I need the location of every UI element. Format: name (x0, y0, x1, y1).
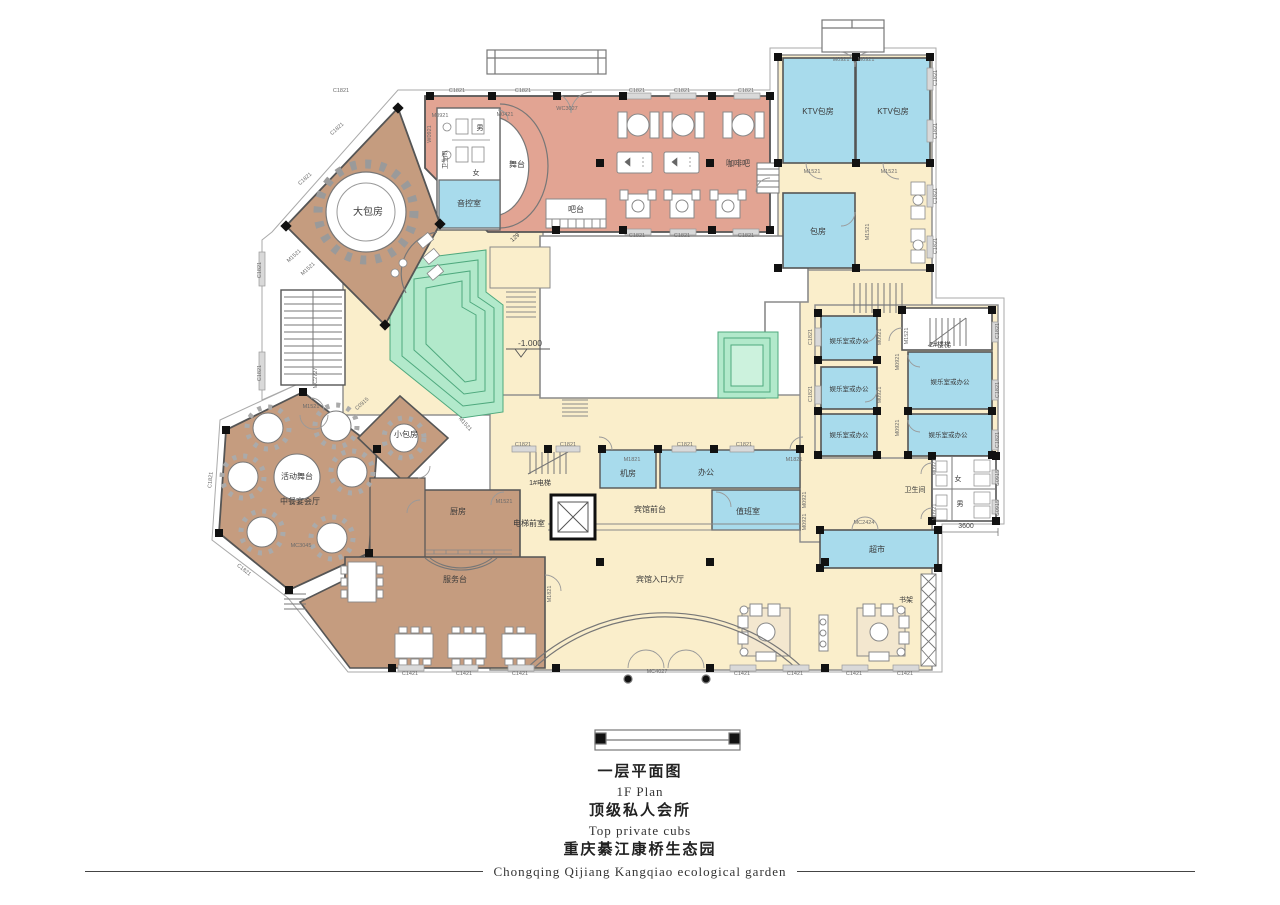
door-window-code: C1821 (674, 88, 690, 94)
office-room: 办公 (698, 467, 714, 477)
door-window-code: C1821 (257, 262, 263, 278)
door-window-code: C1821 (515, 442, 531, 448)
door-window-code: C1821 (629, 233, 645, 239)
door-window-code: C1421 (456, 671, 472, 677)
door-window-code: C1821 (933, 238, 939, 254)
door-window-code: M0421 (497, 112, 514, 118)
door-window-code: M1821 (624, 457, 641, 463)
door-window-code: M0921 (932, 504, 938, 521)
door-window-code: M1521 (865, 224, 871, 241)
small-private-room: 小包房 (394, 429, 418, 439)
mens-toilet-top: 男 (477, 124, 484, 132)
womens-toilet-top: 女 (473, 168, 480, 177)
door-window-code: W0921 (427, 125, 433, 142)
title-rule-right (797, 871, 1195, 872)
office-shape (660, 450, 800, 488)
door-window-code: MC2424 (854, 520, 875, 526)
door-window-code: C1821 (674, 233, 690, 239)
ktv-room-2: KTV包房 (877, 106, 909, 116)
door-window-code: C1821 (449, 88, 465, 94)
bar-counter-label: 吧台 (568, 204, 584, 214)
door-window-code: M1821 (547, 586, 553, 603)
title-en-1: 1F Plan (0, 782, 1280, 801)
door-window-code: M1521 (904, 328, 910, 345)
large-private-room: 大包房 (353, 205, 383, 218)
door-window-code: C1821 (738, 88, 754, 94)
door-window-code: C1821 (515, 88, 531, 94)
door-window-code: C1821 (677, 442, 693, 448)
mens-toilet-bottom: 男 (957, 500, 964, 508)
door-window-code: M0921 (858, 57, 875, 63)
coffee-table-3 (723, 112, 764, 138)
door-window-code: C1821 (933, 188, 939, 204)
rec-office-4: 娱乐室或办公 (931, 377, 971, 386)
door-window-code: M0921 (833, 57, 850, 63)
door-window-code: MC3045 (291, 543, 312, 549)
elevator-shaft (551, 495, 595, 539)
activity-stage: 活动舞台 (281, 471, 313, 481)
elevator-lobby: 电梯前室 (513, 518, 545, 528)
door-window-code: C1821 (995, 432, 1001, 448)
northeast-porch (822, 20, 884, 52)
terrace-platform (490, 247, 550, 288)
terrace-square (718, 332, 778, 398)
door-window-code: M1821 (786, 457, 803, 463)
door-window-code: C1421 (897, 671, 913, 677)
hall-sofa-group-1 (738, 604, 790, 661)
door-window-code: WC3027 (556, 106, 577, 112)
door-window-code: C1821 (808, 386, 814, 402)
hotel-entrance-hall: 宾馆入口大厅 (636, 574, 684, 584)
door-window-code: C1821 (808, 329, 814, 345)
title-rule-left (85, 871, 483, 872)
womens-toilet-bottom: 女 (955, 474, 962, 483)
door-window-code: C1421 (734, 671, 750, 677)
door-window-code: M0921 (895, 354, 901, 371)
hall-sofa-group-2 (857, 604, 909, 661)
door-window-code: C1821 (257, 365, 263, 381)
door-window-code: C1821 (933, 123, 939, 139)
door-window-code: C0915 (995, 500, 1001, 516)
door-window-code: C1821 (995, 382, 1001, 398)
door-window-code: C1421 (787, 671, 803, 677)
door-window-code: M1521 (303, 404, 320, 410)
stair-2-label: 2#楼梯 (929, 340, 951, 349)
title-en-3: Chongqing Qijiang Kangqiao ecological ga… (493, 862, 786, 881)
dimension-3600: 3600 (958, 523, 974, 530)
title-en-2: Top private cubs (0, 821, 1280, 840)
door-window-code: M1521 (496, 499, 513, 505)
toilet-room-bottom: 卫生间 (905, 485, 926, 494)
kitchen-corridor (370, 478, 425, 560)
door-window-code: C1821 (333, 88, 349, 94)
title-cn-3: 重庆綦江康桥生态园 (0, 840, 1280, 860)
coffee-bar: 咖啡吧 (726, 158, 750, 168)
rec-office-1: 娱乐室或办公 (830, 336, 870, 345)
stage: 舞台 (509, 159, 525, 169)
door-window-code: C1821 (629, 88, 645, 94)
coffee-table-1 (618, 112, 659, 138)
private-room: 包房 (810, 226, 826, 236)
door-window-code: C1421 (846, 671, 862, 677)
supermarket: 超市 (869, 544, 885, 554)
door-window-code: C1421 (512, 671, 528, 677)
service-desk-label: 服务台 (443, 574, 467, 584)
door-window-code: C1821 (560, 442, 576, 448)
door-window-code: MC2727 (313, 368, 319, 389)
door-window-code: C1821 (738, 233, 754, 239)
rec-office-5: 娱乐室或办公 (929, 430, 969, 439)
courtyard (390, 236, 808, 418)
bookshelf-shape (921, 574, 936, 666)
door-window-code: C1421 (402, 671, 418, 677)
door-window-code: C1821 (995, 323, 1001, 339)
door-window-code: M0921 (895, 420, 901, 437)
billiard-table-1 (617, 152, 652, 173)
kitchen: 厨房 (450, 506, 466, 516)
title-block: 一层平面图 1F Plan 顶级私人会所 Top private cubs 重庆… (0, 762, 1280, 881)
title-cn-2: 顶级私人会所 (0, 801, 1280, 821)
door-window-code: C0915 (995, 470, 1001, 486)
north-porch (487, 50, 606, 74)
rec-office-2: 娱乐室或办公 (830, 384, 870, 393)
rec-office-3: 娱乐室或办公 (830, 430, 870, 439)
door-window-code: M0921 (877, 329, 883, 346)
machine-room: 机房 (620, 468, 636, 478)
door-window-code: M0921 (802, 492, 808, 509)
level-mark: -1.000 (518, 338, 542, 348)
coffee-table-2 (663, 112, 704, 138)
floor-plan-page: 大包房舞台音控室男女卫生间吧台咖啡吧KTV包房KTV包房包房娱乐室或办公娱乐室或… (0, 0, 1280, 905)
hall-plant (819, 615, 828, 651)
door-window-code: M1521 (881, 169, 898, 175)
toilet-room-top: 卫生间 (441, 151, 449, 169)
bookshelf-label: 书架 (899, 595, 913, 604)
door-window-code: M0921 (932, 459, 938, 476)
duty-room: 值班室 (736, 506, 760, 516)
door-window-code: C1821 (736, 442, 752, 448)
billiard-table-2 (664, 152, 699, 173)
title-cn-1: 一层平面图 (0, 762, 1280, 782)
ktv-room-1: KTV包房 (802, 106, 834, 116)
chinese-banquet-hall: 中餐宴会厅 (280, 496, 320, 506)
door-window-code: M1521 (804, 169, 821, 175)
hotel-front-desk: 宾馆前台 (634, 504, 666, 514)
elevator-1-label: 1#电梯 (529, 478, 551, 487)
door-window-code: M0921 (877, 387, 883, 404)
title-rule-row: Chongqing Qijiang Kangqiao ecological ga… (0, 862, 1280, 881)
door-window-code: MC4027 (647, 669, 668, 675)
door-window-code: M0921 (432, 113, 449, 119)
sound-control-room: 音控室 (457, 198, 481, 208)
door-window-code: M0921 (802, 514, 808, 531)
door-window-code: C1821 (933, 70, 939, 86)
